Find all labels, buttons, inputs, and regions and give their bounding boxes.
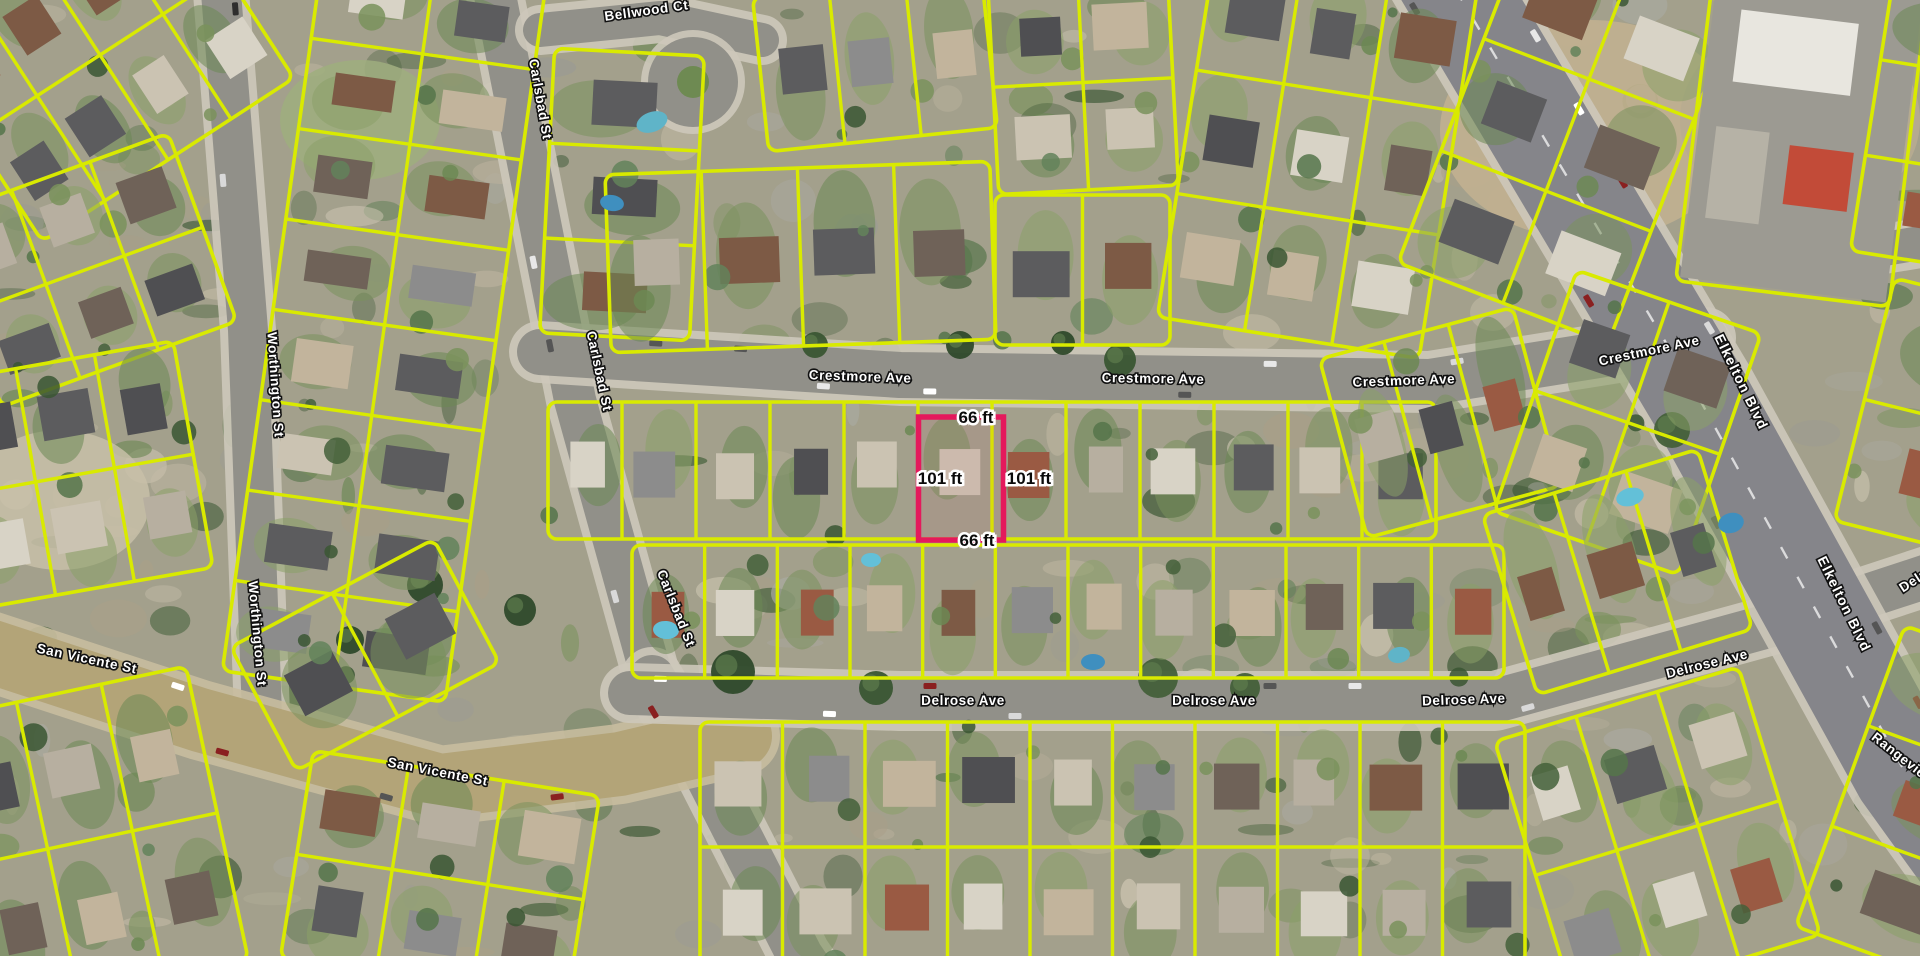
tree	[1456, 750, 1468, 762]
house-roof	[1351, 260, 1415, 314]
house-roof	[50, 500, 108, 554]
house-roof	[165, 870, 219, 924]
tree-highlight	[1107, 347, 1123, 363]
tree	[838, 798, 861, 821]
house-roof	[723, 890, 763, 936]
pool	[1081, 654, 1105, 670]
dim-right: 101 ft	[1007, 469, 1052, 488]
building	[1705, 126, 1770, 224]
tree	[747, 554, 769, 576]
house-roof	[794, 449, 828, 495]
house-roof	[1394, 12, 1457, 66]
house-roof	[716, 453, 754, 499]
house-roof	[291, 338, 354, 389]
car	[1349, 683, 1362, 689]
house-roof	[633, 452, 675, 498]
map-layers: 66 ft101 ft101 ft66 ftBellwood CtCarlsba…	[0, 0, 1920, 956]
house-roof	[716, 590, 754, 636]
house-roof	[1306, 584, 1344, 630]
house-roof	[454, 0, 510, 43]
house-roof	[1290, 129, 1349, 183]
house-roof	[1219, 887, 1264, 933]
tree-highlight	[507, 597, 523, 613]
house-roof	[809, 756, 849, 802]
house-roof	[1087, 584, 1122, 630]
house-roof	[1234, 444, 1274, 490]
tree-highlight	[715, 654, 737, 676]
car	[823, 711, 836, 717]
house-roof	[778, 44, 827, 94]
tree	[1093, 422, 1112, 441]
house-roof	[518, 810, 582, 864]
tree	[1317, 758, 1340, 781]
house-roof	[1155, 590, 1192, 636]
tree	[932, 607, 951, 626]
house-roof	[1091, 2, 1148, 51]
house-roof	[1054, 760, 1092, 806]
tree	[1166, 560, 1181, 575]
car	[1264, 361, 1277, 367]
tree	[1327, 648, 1349, 670]
dim-left: 101 ft	[918, 469, 963, 488]
tree	[1270, 522, 1282, 534]
house-roof	[962, 757, 1015, 803]
house-roof	[143, 490, 192, 539]
house-roof	[1137, 883, 1180, 929]
building	[1783, 145, 1854, 212]
pool	[861, 553, 881, 567]
car	[219, 174, 226, 187]
house-roof	[799, 888, 851, 934]
street-label-delrose-ave-3: Delrose Ave	[1422, 691, 1506, 709]
house-roof	[633, 239, 680, 287]
house-roof	[714, 761, 761, 806]
house-roof	[1299, 447, 1340, 493]
house-roof	[1370, 765, 1423, 811]
tree	[1199, 762, 1212, 775]
house-roof	[1214, 764, 1259, 810]
house-roof	[1012, 587, 1053, 633]
house-roof	[1089, 447, 1123, 493]
tree	[905, 425, 915, 435]
house-roof	[1180, 232, 1241, 286]
house-roof	[913, 229, 966, 277]
house-roof	[932, 29, 976, 79]
house-roof	[1105, 243, 1151, 289]
house-roof	[885, 885, 929, 931]
tree	[1146, 448, 1158, 460]
street-label-delrose-ave-2: Delrose Ave	[1172, 693, 1256, 708]
tree	[1156, 760, 1171, 775]
satellite-map[interactable]: 66 ft101 ft101 ft66 ftBellwood CtCarlsba…	[0, 0, 1920, 956]
car	[923, 388, 936, 394]
house-roof	[1229, 590, 1274, 636]
house-roof	[1044, 889, 1094, 935]
house-roof	[120, 383, 168, 435]
tree	[1412, 612, 1431, 631]
house-roof	[311, 885, 363, 937]
dim-bottom: 66 ft	[960, 531, 995, 550]
house-roof	[857, 442, 897, 488]
house-roof	[1467, 881, 1512, 927]
map-canvas[interactable]: 66 ft101 ft101 ft66 ftBellwood CtCarlsba…	[0, 0, 1920, 956]
tree	[1212, 623, 1236, 647]
house-roof	[1310, 8, 1357, 60]
house-roof	[1013, 251, 1070, 297]
tree	[1308, 507, 1320, 519]
house-roof	[1202, 115, 1259, 168]
house-roof	[1458, 763, 1509, 809]
house-roof	[374, 533, 440, 581]
tree	[813, 595, 839, 621]
tree	[1026, 745, 1040, 759]
house-roof	[867, 585, 902, 631]
tree	[1050, 612, 1062, 624]
car	[924, 683, 937, 689]
car	[232, 2, 239, 15]
house-roof	[883, 761, 936, 807]
building	[1733, 9, 1859, 95]
tree	[1339, 876, 1360, 897]
tree	[1431, 727, 1448, 744]
street-label-crestmore-ave-2: Crestmore Ave	[1102, 370, 1205, 387]
house-roof	[1455, 589, 1491, 635]
house-roof	[1019, 17, 1062, 57]
house-roof	[570, 442, 605, 488]
house-roof	[1373, 583, 1414, 629]
house-roof	[1301, 891, 1347, 936]
house-roof	[847, 37, 893, 87]
dim-top: 66 ft	[959, 408, 994, 427]
car	[1264, 683, 1277, 689]
house-roof	[1014, 114, 1072, 160]
car	[1009, 713, 1022, 719]
house-roof	[964, 884, 1003, 930]
car	[817, 383, 830, 390]
tree	[1389, 921, 1407, 939]
car	[1178, 392, 1191, 398]
street-label-delrose-ave-1: Delrose Ave	[921, 693, 1005, 708]
